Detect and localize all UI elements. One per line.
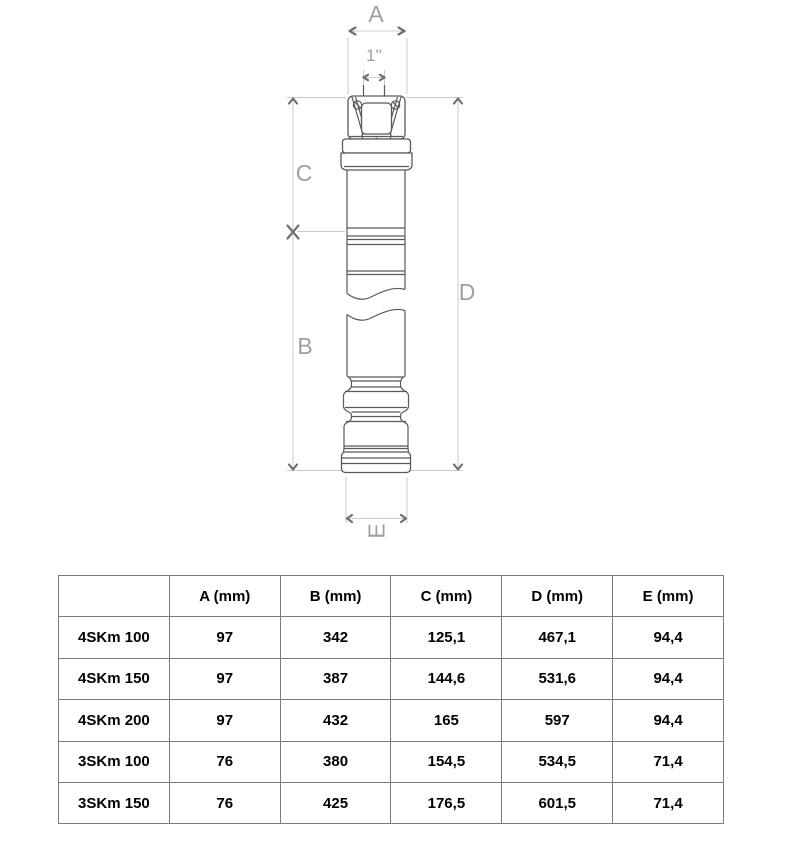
cell-a: 97 xyxy=(169,700,280,741)
cell-b: 380 xyxy=(280,741,391,782)
label-b: B xyxy=(297,333,312,359)
cell-a: 97 xyxy=(169,658,280,699)
table-row: 4SKm 200 97 432 165 597 94,4 xyxy=(59,700,724,741)
table-row: 4SKm 150 97 387 144,6 531,6 94,4 xyxy=(59,658,724,699)
bottom-cap xyxy=(342,452,411,473)
cell-e: 71,4 xyxy=(613,782,724,823)
cell-d: 601,5 xyxy=(502,782,613,823)
label-d: D xyxy=(459,279,476,305)
label-c: C xyxy=(296,160,313,186)
upper-body-section-lines xyxy=(347,228,405,275)
cell-d: 467,1 xyxy=(502,617,613,658)
cell-b: 425 xyxy=(280,782,391,823)
cell-c: 154,5 xyxy=(391,741,502,782)
column-header-b: B (mm) xyxy=(280,576,391,617)
table-row: 3SKm 100 76 380 154,5 534,5 71,4 xyxy=(59,741,724,782)
table-row: 3SKm 150 76 425 176,5 601,5 71,4 xyxy=(59,782,724,823)
cell-b: 387 xyxy=(280,658,391,699)
cell-c: 144,6 xyxy=(391,658,502,699)
cell-a: 76 xyxy=(169,741,280,782)
label-e: E xyxy=(364,523,390,538)
row-label: 4SKm 100 xyxy=(59,617,170,658)
pump-body xyxy=(341,85,412,473)
dim-e-extension-lines xyxy=(346,477,407,523)
head-collar-upper xyxy=(343,139,411,153)
row-label: 4SKm 200 xyxy=(59,700,170,741)
cell-e: 94,4 xyxy=(613,700,724,741)
cell-e: 94,4 xyxy=(613,658,724,699)
dimensions-table: A (mm) B (mm) C (mm) D (mm) E (mm) 4SKm … xyxy=(58,575,724,824)
label-port-size: 1'' xyxy=(366,46,382,65)
cell-e: 94,4 xyxy=(613,617,724,658)
table-row: 4SKm 100 97 342 125,1 467,1 94,4 xyxy=(59,617,724,658)
break-wave-upper xyxy=(347,288,405,299)
cell-c: 125,1 xyxy=(391,617,502,658)
lower-body-left-edge xyxy=(344,315,352,453)
corner-cell xyxy=(59,576,170,617)
cell-c: 165 xyxy=(391,700,502,741)
cell-c: 176,5 xyxy=(391,782,502,823)
discharge-port-stubs xyxy=(364,85,385,96)
pump-drawing-svg: A 1'' C B D E xyxy=(0,0,787,560)
cell-d: 531,6 xyxy=(502,658,613,699)
pump-dimension-diagram: A 1'' C B D E xyxy=(0,0,787,560)
head-collar-lower xyxy=(341,153,412,170)
cell-b: 342 xyxy=(280,617,391,658)
row-label: 3SKm 150 xyxy=(59,782,170,823)
break-wave-lower xyxy=(347,309,405,320)
label-a: A xyxy=(368,1,384,27)
column-header-d: D (mm) xyxy=(502,576,613,617)
column-header-c: C (mm) xyxy=(391,576,502,617)
row-label: 4SKm 150 xyxy=(59,658,170,699)
cell-e: 71,4 xyxy=(613,741,724,782)
port-block xyxy=(362,103,392,134)
column-header-e: E (mm) xyxy=(613,576,724,617)
cell-a: 97 xyxy=(169,617,280,658)
cell-b: 432 xyxy=(280,700,391,741)
row-label: 3SKm 100 xyxy=(59,741,170,782)
header-row: A (mm) B (mm) C (mm) D (mm) E (mm) xyxy=(59,576,724,617)
lower-body-right-edge xyxy=(401,311,409,453)
cell-d: 534,5 xyxy=(502,741,613,782)
motor-rib-lines xyxy=(344,377,408,449)
cell-a: 76 xyxy=(169,782,280,823)
cell-d: 597 xyxy=(502,700,613,741)
column-header-a: A (mm) xyxy=(169,576,280,617)
